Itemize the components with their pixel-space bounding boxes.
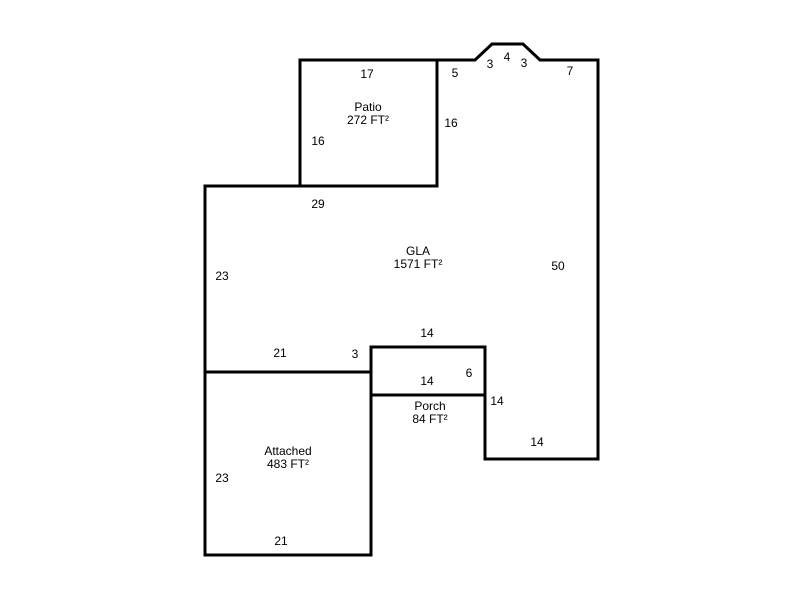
dim-patio-top: 17 [360,68,373,80]
attached-area: 483 FT² [264,458,311,471]
floor-plan-outlines [0,0,800,600]
dim-bump-right: 3 [521,57,528,69]
dim-attached-bottom: 21 [274,535,287,547]
dim-porch-top: 14 [420,327,433,339]
dim-gla-step: 3 [352,348,359,360]
dim-patio-left: 16 [311,135,324,147]
dim-gla-bottom-left: 21 [273,347,286,359]
dim-attached-left: 23 [215,472,228,484]
dim-porch-height: 6 [466,367,473,379]
patio-area: 272 FT² [347,114,389,127]
dim-gla-right-side: 50 [551,260,564,272]
dim-gla-notch-right: 14 [490,395,503,407]
dim-bump-top: 4 [504,51,511,63]
dim-gla-side-at-patio: 16 [444,117,457,129]
dim-gla-left-side: 23 [215,270,228,282]
gla-label: GLA 1571 FT² [394,245,443,271]
dim-porch-width: 14 [420,375,433,387]
patio-label: Patio 272 FT² [347,101,389,127]
attached-label: Attached 483 FT² [264,445,311,471]
dim-gla-bottom-right: 14 [530,436,543,448]
floor-plan-sketch: 17 16 5 3 4 3 7 16 29 23 50 14 21 3 14 6… [0,0,800,600]
dim-gla-top-right-seg: 7 [567,65,574,77]
dim-bump-left: 3 [487,58,494,70]
dim-gla-top-width: 29 [311,198,324,210]
porch-area: 84 FT² [412,413,447,426]
porch-label: Porch 84 FT² [412,400,447,426]
dim-gla-top-left-seg: 5 [452,67,459,79]
gla-area: 1571 FT² [394,258,443,271]
